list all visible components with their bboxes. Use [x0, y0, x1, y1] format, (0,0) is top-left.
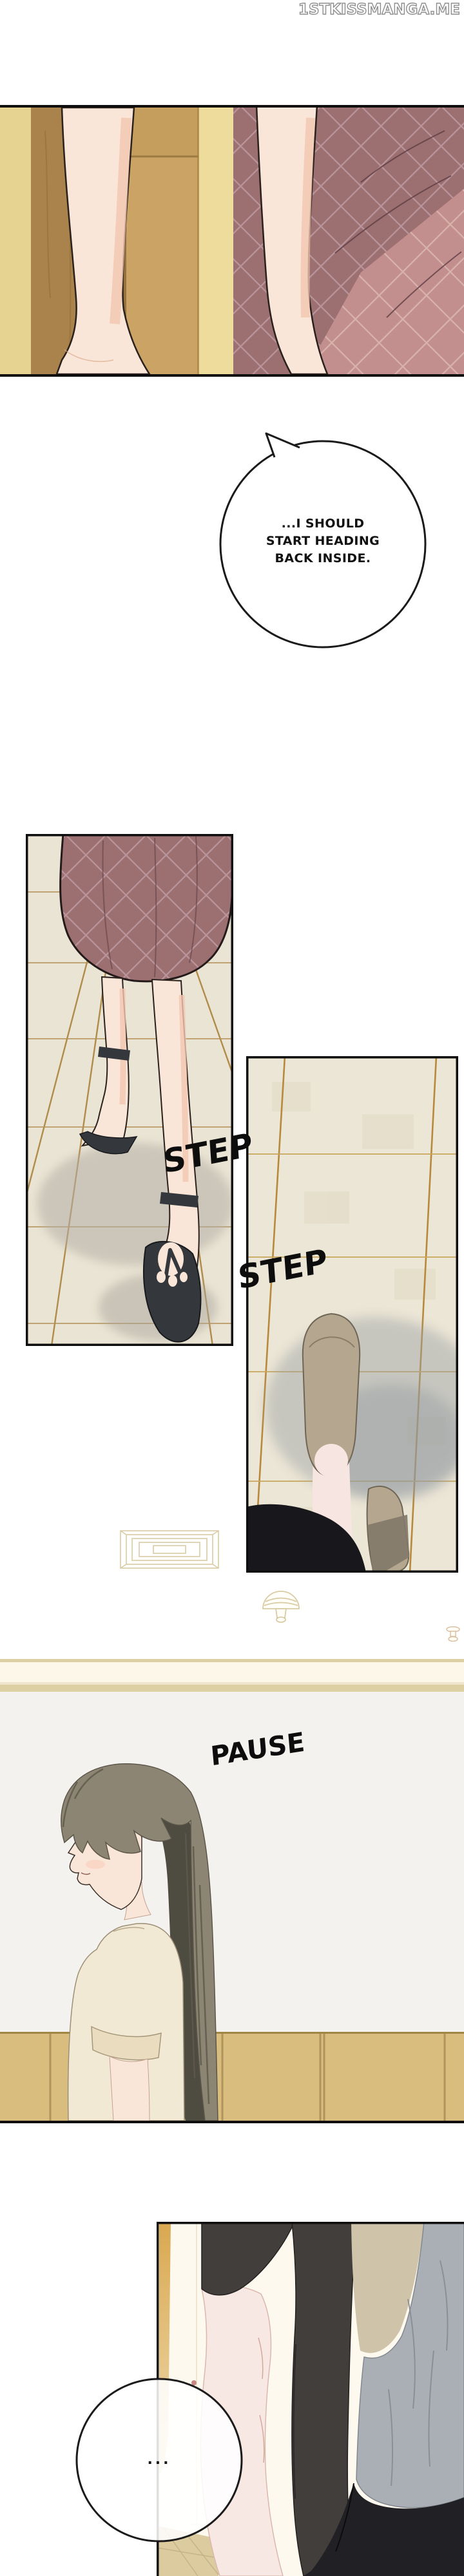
speech-bubble-ellipsis-text: ...: [121, 2451, 198, 2468]
speech-bubble-text: ...I SHOULD START HEADING BACK INSIDE.: [232, 515, 414, 567]
panel-walking-slippers: [246, 1056, 458, 1573]
bubble1-line1: ...I SHOULD: [232, 515, 414, 533]
panel-legs-wood-floor: [0, 105, 464, 377]
panel-walking-sandals: [26, 834, 233, 1346]
ceiling-vent-icon: [120, 1528, 219, 1571]
smoke-detector-icon: [260, 1586, 302, 1624]
bubble1-line3: BACK INSIDE.: [232, 550, 414, 567]
sprinkler-icon: [443, 1625, 463, 1643]
wall-molding-band: [0, 1662, 464, 1682]
bubble1-line2: START HEADING: [232, 533, 414, 550]
webtoon-page: 1STKISSMANGA.ME: [0, 0, 464, 2576]
site-watermark: 1STKISSMANGA.ME: [298, 1, 460, 18]
